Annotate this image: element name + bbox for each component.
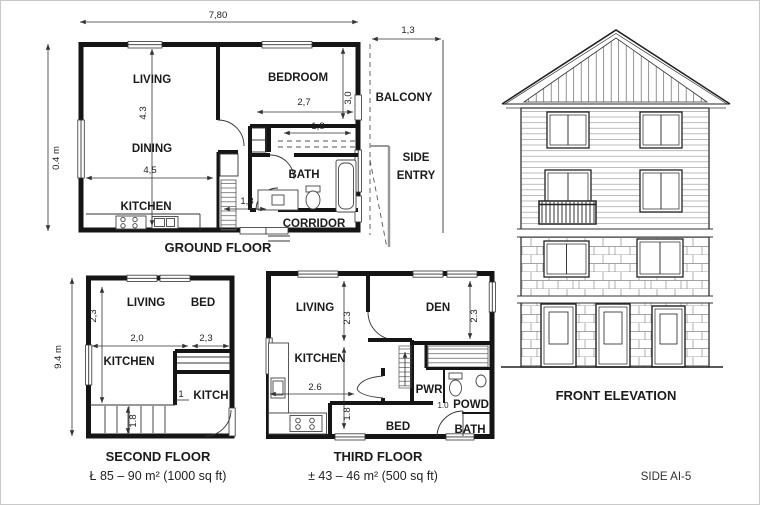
- dim-sf-stair-width: 1.8: [128, 414, 139, 427]
- dim-sf-overall-height: 9.4 m: [53, 345, 64, 369]
- room-label-sf-kitchen: KITCHEN: [103, 356, 154, 368]
- room-label-sf-living: LIVING: [127, 297, 165, 309]
- dim-overall-height: 0.4 m: [51, 146, 62, 170]
- room-label-sf-bed: BED: [191, 297, 215, 309]
- dim-living-height: 4.3: [138, 106, 149, 119]
- dim-tf-powd-width: 1.0: [437, 401, 449, 410]
- room-label-bedroom: BEDROOM: [268, 72, 328, 84]
- room-label-kitchen: KITCHEN: [120, 201, 171, 213]
- room-label-tf-pwr: PWR: [416, 384, 444, 396]
- dim-bedroom-width: 2,7: [297, 97, 310, 108]
- room-label-tf-bed: BED: [386, 421, 410, 433]
- dim-tf-den-height: 2.3: [469, 309, 480, 322]
- dim-tf-kitchen-width: 2.6: [308, 382, 321, 393]
- room-label-tf-living: LIVING: [296, 302, 334, 314]
- room-label-sf-kitch: KITCH: [193, 390, 228, 402]
- dim-tf-stair-height: 1.8: [342, 407, 353, 420]
- dim-overall-width: 7,80: [209, 10, 228, 21]
- blueprint-sheet: 7,80 0.4 m 4.3 2,7 3,0 1,8 4,5 1,3 1,3 L…: [0, 0, 760, 505]
- dim-closet-width: 1,8: [311, 121, 324, 132]
- dim-sf-living-height: 2,3: [88, 309, 99, 322]
- room-label-living: LIVING: [133, 74, 171, 86]
- dim-bedroom-height: 3,0: [343, 91, 354, 104]
- dim-tf-living-height: 2.3: [342, 311, 353, 324]
- ground-floor-title: GROUND FLOOR: [165, 240, 272, 255]
- room-label-side: SIDE: [403, 152, 430, 164]
- room-label-tf-den: DEN: [426, 302, 450, 314]
- dim-hall-width: 1,3: [240, 196, 253, 207]
- room-label-tf-bath: BATH: [454, 424, 485, 436]
- third-floor-area: ± 43 – 46 m² (500 sq ft): [308, 469, 438, 483]
- dim-dining-width: 4,5: [143, 165, 156, 176]
- third-floor-title: THIRD FLOOR: [334, 449, 423, 464]
- dim-sf-living-width: 2,0: [130, 333, 143, 344]
- elevation-doors: [541, 304, 685, 367]
- room-label-tf-kitchen: KITCHEN: [294, 353, 345, 365]
- room-label-dining: DINING: [132, 143, 172, 155]
- second-floor-area: Ł 85 – 90 m² (1000 sq ft): [90, 469, 227, 483]
- room-label-tf-powd: POWD: [453, 399, 489, 411]
- elevation-title: FRONT ELEVATION: [556, 388, 677, 403]
- dim-sf-kitch-width: 1: [178, 389, 183, 400]
- room-label-balcony: BALCONY: [376, 92, 433, 104]
- room-label-corridor: CORRIDOR: [283, 218, 346, 230]
- second-floor-title: SECOND FLOOR: [106, 449, 211, 464]
- room-label-entry: ENTRY: [397, 170, 436, 182]
- architectural-drawing: 7,80 0.4 m 4.3 2,7 3,0 1,8 4,5 1,3 1,3 L…: [0, 0, 760, 505]
- dim-balcony-width: 1,3: [401, 25, 414, 36]
- dim-sf-bed-width: 2,3: [199, 333, 212, 344]
- sheet-side-label: SIDE AI-5: [641, 471, 692, 483]
- room-label-bath: BATH: [288, 169, 319, 181]
